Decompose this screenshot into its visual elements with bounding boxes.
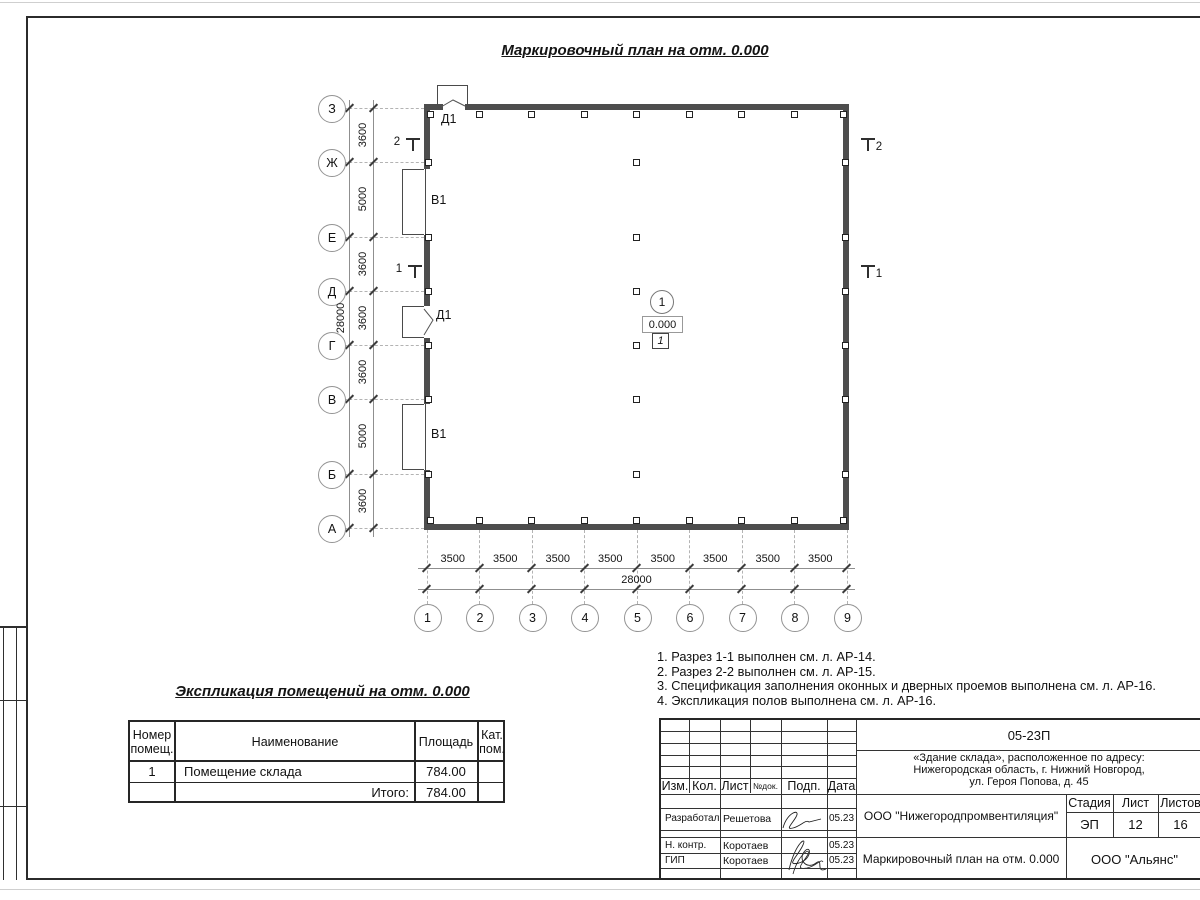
column-marker [425, 234, 432, 241]
stamp-sign-role: ГИП [665, 853, 719, 868]
stamp-line [1066, 812, 1200, 813]
axis-dash-line [344, 162, 424, 163]
dim-label: 3500 [430, 553, 476, 565]
elevation-tag: 0.000 [642, 316, 683, 333]
stamp-sheet-title: Маркировочный план на отм. 0.000 [858, 839, 1064, 879]
axis-dash-line [344, 399, 424, 400]
page-edge-top [0, 2, 1200, 3]
column-marker [581, 517, 588, 524]
stamp-sign-name: Коротаев [723, 838, 779, 853]
table-cell-room-number: 1 [131, 761, 173, 781]
note-line: 3. Спецификация заполнения оконных и две… [657, 679, 1156, 694]
column-marker [791, 111, 798, 118]
margin-column-line [0, 806, 26, 807]
note-line: 2. Разрез 2-2 выполнен см. л. АР-15. [657, 665, 1156, 680]
stamp-line [661, 766, 856, 767]
column-marker [686, 517, 693, 524]
stamp-rev-header: Подп. [781, 778, 827, 794]
stamp-address-line: «Здание склада», расположенное по адресу… [856, 752, 1200, 764]
axis-circle-З: З [318, 95, 346, 123]
stamp-sign-date: 05.23 [828, 838, 855, 853]
stamp-sheet-label: Лист [1114, 795, 1157, 811]
column-marker [633, 396, 640, 403]
column-marker [842, 342, 849, 349]
dim-label: 3600 [357, 349, 369, 395]
column-marker [528, 517, 535, 524]
room-number-tag: 1 [650, 290, 674, 314]
column-marker [738, 517, 745, 524]
column-marker [633, 471, 640, 478]
column-marker [842, 471, 849, 478]
stamp-sign-role: Н. контр. [665, 838, 719, 853]
room-table-title: Экспликация помещений на отм. 0.000 [130, 683, 515, 700]
stamp-doc-number: 05-23П [856, 722, 1200, 748]
dim-label: 3500 [640, 553, 686, 565]
room-table: Номер помещ. Наименование Площадь Кат. п… [128, 720, 505, 803]
margin-column-line [0, 700, 26, 701]
dim-label: 3500 [745, 553, 791, 565]
section-mark-label: 1 [872, 268, 886, 280]
note-line: 1. Разрез 1-1 выполнен см. л. АР-14. [657, 650, 1156, 665]
axis-circle-5: 5 [624, 604, 652, 632]
column-marker [476, 517, 483, 524]
table-total-label: Итого: [184, 783, 409, 801]
stamp-address-line: Нижегородская область, г. Нижний Новгоро… [856, 764, 1200, 776]
stamp-sheet-value: 12 [1114, 813, 1157, 836]
dim-label: 3600 [357, 241, 369, 287]
stamp-rev-header: Лист [720, 778, 750, 794]
column-marker [633, 111, 640, 118]
stamp-stage-label: Стадия [1067, 795, 1112, 811]
stamp-line [661, 830, 856, 831]
dim-label: 3600 [357, 295, 369, 341]
stamp-rev-header: Изм. [661, 778, 689, 794]
column-marker [427, 517, 434, 524]
section-mark-label: 1 [392, 263, 406, 275]
axis-circle-8: 8 [781, 604, 809, 632]
column-marker [425, 396, 432, 403]
axis-dash-line [344, 345, 424, 346]
stamp-line [661, 743, 856, 744]
stamp-address-line: ул. Героя Попова, д. 45 [856, 776, 1200, 788]
axis-dash-line [344, 474, 424, 475]
wall-right [843, 104, 849, 530]
stamp-line [661, 794, 1200, 795]
note-line: 4. Экспликация полов выполнена см. л. АР… [657, 694, 1156, 709]
dim-label: 3600 [357, 478, 369, 524]
axis-circle-9: 9 [834, 604, 862, 632]
axis-circle-Ж: Ж [318, 149, 346, 177]
column-marker [840, 111, 847, 118]
margin-column-line [3, 626, 4, 880]
column-marker [791, 517, 798, 524]
table-cell-room-area: 784.00 [415, 761, 477, 781]
table-header-area: Площадь [415, 726, 477, 758]
section-mark-label: 2 [390, 136, 404, 148]
stamp-line [661, 868, 856, 869]
axis-dash-line [344, 291, 424, 292]
opening-label: В1 [431, 427, 446, 441]
section-mark-label: 2 [872, 141, 886, 153]
stamp-sign-name: Решетова [723, 811, 779, 826]
axis-circle-А: А [318, 515, 346, 543]
margin-column-line [16, 626, 17, 880]
stamp-org: ООО "Нижегородпромвентиляция" [858, 796, 1064, 835]
axis-circle-В: В [318, 386, 346, 414]
table-cell-room-name: Помещение склада [184, 761, 414, 781]
window-niche [402, 404, 403, 470]
axis-circle-1: 1 [414, 604, 442, 632]
column-marker [633, 159, 640, 166]
axis-circle-4: 4 [571, 604, 599, 632]
axis-dash-line [344, 528, 424, 529]
column-marker [633, 234, 640, 241]
column-marker [842, 159, 849, 166]
stamp-sheets-label: Листов [1159, 795, 1200, 811]
axis-circle-Б: Б [318, 461, 346, 489]
stamp-line [1066, 794, 1067, 878]
column-marker [633, 517, 640, 524]
dim-label: 3500 [535, 553, 581, 565]
section-mark-icon [867, 138, 869, 151]
dim-label: 3500 [482, 553, 528, 565]
stamp-rev-header: №док. [750, 778, 781, 794]
opening-label: В1 [431, 193, 446, 207]
axis-circle-2: 2 [466, 604, 494, 632]
table-total-area: 784.00 [415, 783, 477, 801]
stamp-line [661, 808, 856, 809]
title-block: 05-23П «Здание склада», расположенное по… [659, 718, 1200, 880]
column-marker [425, 342, 432, 349]
page-title: Маркировочный план на отм. 0.000 [430, 42, 840, 59]
table-header-room-number: Номер помещ. [131, 726, 173, 758]
dim-label: 3500 [692, 553, 738, 565]
page-edge-bottom [0, 889, 1200, 890]
notes: 1. Разрез 1-1 выполнен см. л. АР-14.2. Р… [657, 650, 1156, 708]
stamp-line [1158, 794, 1159, 837]
column-marker [842, 288, 849, 295]
column-marker [528, 111, 535, 118]
drawing-sheet: Маркировочный план на отм. 0.000 2 1 2 [0, 0, 1200, 900]
window-niche [402, 469, 424, 470]
section-mark-icon [414, 265, 416, 278]
dim-label: 5000 [357, 176, 369, 222]
column-marker [633, 288, 640, 295]
opening-label: Д1 [436, 308, 451, 322]
stamp-sign-date: 05.23 [828, 853, 855, 868]
stamp-line [856, 750, 1200, 751]
column-marker [738, 111, 745, 118]
axis-circle-3: 3 [519, 604, 547, 632]
stamp-sign-date: 05.23 [828, 811, 855, 826]
section-mark-icon [867, 265, 869, 278]
opening-label: Д1 [441, 112, 456, 126]
stamp-line [1113, 794, 1114, 837]
stamp-line [661, 731, 856, 732]
dim-label: 3500 [797, 553, 843, 565]
stamp-sheets-value: 16 [1159, 813, 1200, 836]
column-marker [633, 342, 640, 349]
floor-type-tag: 1 [652, 333, 669, 349]
dim-label: 3600 [357, 112, 369, 158]
axis-dash-line [344, 108, 424, 109]
column-marker [842, 234, 849, 241]
axis-dash-line [344, 237, 424, 238]
axis-circle-7: 7 [729, 604, 757, 632]
dim-label: 3500 [587, 553, 633, 565]
stamp-rev-header: Дата [827, 778, 856, 794]
axis-circle-Е: Е [318, 224, 346, 252]
stamp-rev-header: Кол. [689, 778, 720, 794]
table-header-category: Кат. пом. [479, 726, 505, 758]
column-marker [425, 288, 432, 295]
stamp-line [856, 720, 857, 878]
dim-total-label: 28000 [335, 291, 347, 345]
window-niche [402, 404, 424, 405]
wall-top [465, 104, 849, 110]
section-mark-icon [412, 138, 414, 151]
column-marker [840, 517, 847, 524]
table-header-name: Наименование [176, 726, 414, 758]
stamp-company: ООО "Альянс" [1067, 839, 1200, 879]
column-marker [425, 159, 432, 166]
dim-label: 5000 [357, 413, 369, 459]
column-marker [476, 111, 483, 118]
dim-total-label: 28000 [611, 574, 662, 586]
stamp-line [661, 755, 856, 756]
column-marker [425, 471, 432, 478]
column-marker [581, 111, 588, 118]
stamp-sign-name: Коротаев [723, 853, 779, 868]
axis-circle-6: 6 [676, 604, 704, 632]
column-marker [842, 396, 849, 403]
stamp-stage-value: ЭП [1067, 813, 1112, 836]
column-marker [427, 111, 434, 118]
window-glass-line [425, 404, 426, 470]
stamp-sign-role: Разработал [665, 811, 719, 826]
margin-column-line [0, 626, 26, 628]
column-marker [686, 111, 693, 118]
